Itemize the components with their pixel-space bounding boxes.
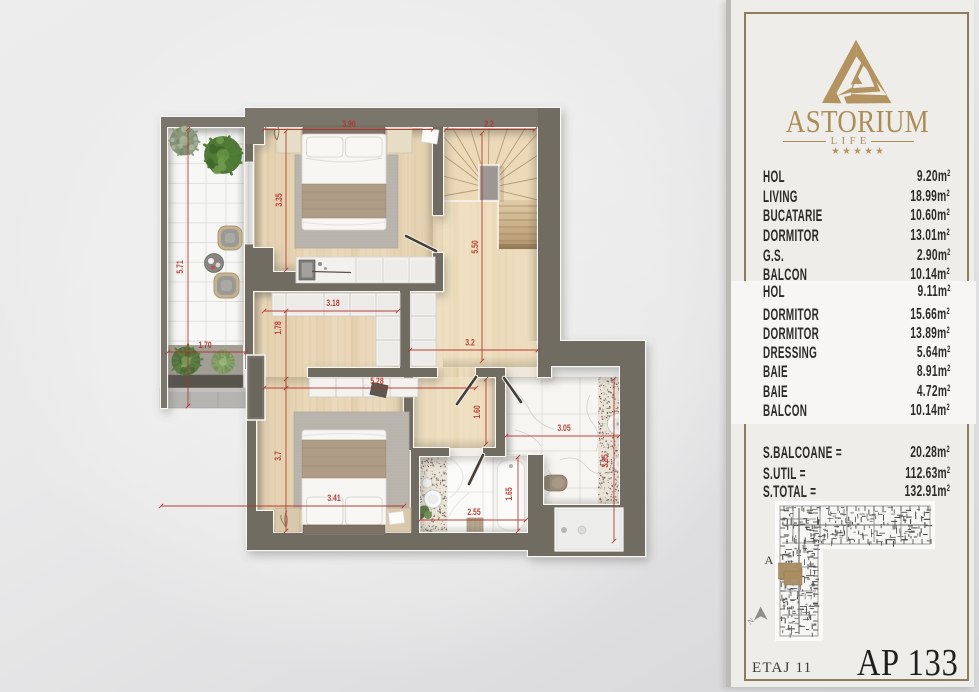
svg-text:2.2: 2.2 — [484, 119, 494, 129]
svg-text:3.85: 3.85 — [600, 454, 610, 468]
svg-text:3.18: 3.18 — [326, 298, 340, 308]
svg-text:1.70: 1.70 — [198, 340, 212, 350]
svg-text:3.90: 3.90 — [342, 119, 356, 129]
svg-text:5.50: 5.50 — [470, 240, 480, 254]
svg-text:1.60: 1.60 — [472, 405, 482, 419]
svg-text:3.05: 3.05 — [557, 423, 571, 433]
svg-text:5.71: 5.71 — [175, 260, 185, 274]
svg-text:2.55: 2.55 — [467, 507, 481, 517]
svg-text:3.41: 3.41 — [327, 493, 341, 503]
svg-text:1.65: 1.65 — [504, 487, 514, 501]
svg-text:3.2: 3.2 — [465, 337, 475, 347]
svg-text:3.35: 3.35 — [274, 193, 284, 207]
svg-text:3.7: 3.7 — [273, 451, 283, 461]
svg-text:1.78: 1.78 — [273, 321, 283, 335]
svg-text:5.28: 5.28 — [370, 376, 384, 386]
